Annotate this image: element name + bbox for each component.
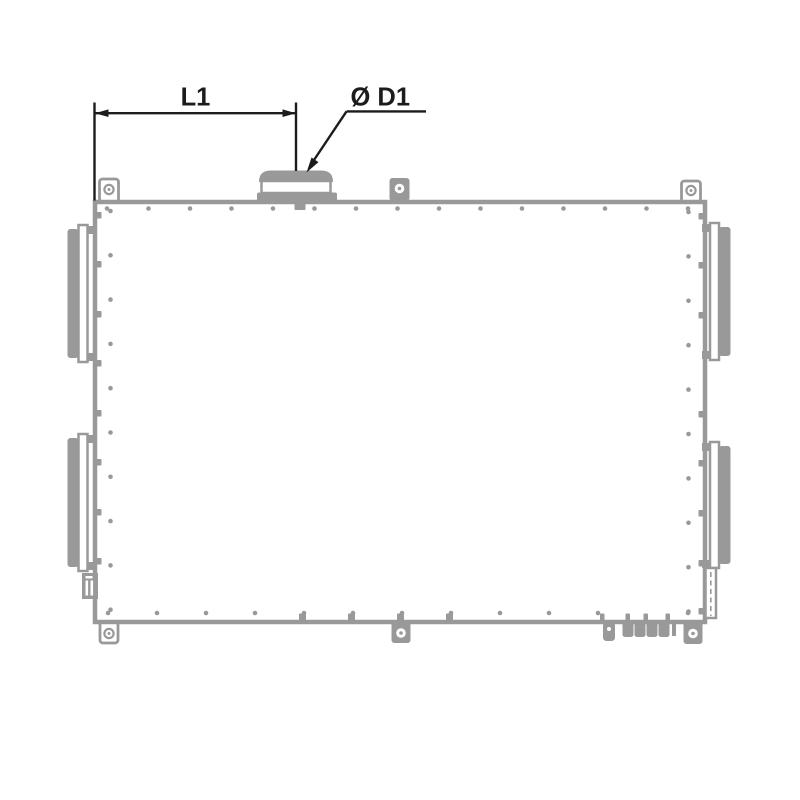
cable-gland-tab (672, 622, 676, 636)
mounting-foot-bottom-right (684, 621, 703, 644)
diameter-callout-label: Ø D1 (351, 84, 411, 112)
left-flange-upper (68, 225, 97, 362)
dimension-arrow-left (95, 109, 109, 117)
duct-port-collar (262, 181, 331, 193)
mounting-foot-bottom-left (100, 621, 118, 643)
dimension-arrow-right (283, 109, 297, 117)
cable-gland (659, 622, 670, 637)
unit-body (95, 202, 705, 622)
top-duct-port (257, 171, 337, 203)
left-flange-lower (68, 434, 97, 571)
technical-drawing: L1 Ø D1 (0, 0, 800, 800)
cable-gland (647, 622, 658, 637)
mounting-foot-top-left (100, 179, 119, 202)
cable-gland (635, 622, 646, 637)
mounting-foot-top-right (682, 181, 701, 202)
duct-port-base-flange (257, 193, 337, 203)
leader-arrowhead (307, 158, 319, 173)
diameter-callout: Ø D1 (307, 84, 427, 173)
dimension-l1-label: L1 (181, 84, 211, 112)
cable-glands (603, 622, 676, 641)
drain-pipe (706, 568, 717, 618)
left-latch (82, 573, 98, 599)
cable-gland-large (603, 622, 615, 641)
leader-line (312, 111, 347, 163)
mounting-foot-top-middle (390, 178, 410, 201)
mounting-foot-bottom-middle (392, 621, 411, 643)
cable-gland (623, 622, 634, 637)
drawing-canvas: L1 Ø D1 (0, 0, 800, 800)
